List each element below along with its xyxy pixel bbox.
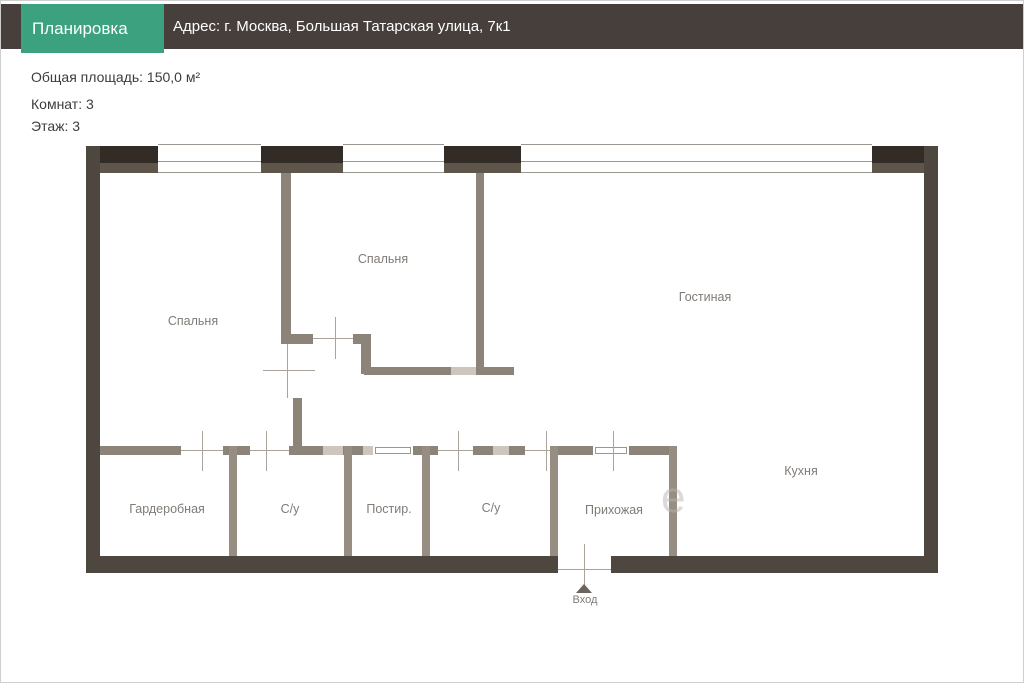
window xyxy=(158,144,261,173)
room-label-bedroom-2: Спальня xyxy=(358,252,408,266)
door-marker xyxy=(458,431,459,471)
interior-wall xyxy=(229,446,237,556)
room-label-laundry: Постир. xyxy=(366,502,411,516)
entrance-line xyxy=(584,544,585,585)
outer-wall-bottom-right xyxy=(611,556,938,573)
room-label-bathroom-1: С/у xyxy=(281,502,300,516)
room-label-bedroom-1: Спальня xyxy=(168,314,218,328)
window xyxy=(343,144,444,173)
interior-wall xyxy=(344,446,352,556)
window-frame-line xyxy=(521,161,872,162)
outer-wall-segment xyxy=(261,146,343,163)
outer-wall-left xyxy=(86,146,100,573)
door-marker xyxy=(202,431,203,471)
interior-wall xyxy=(100,446,181,455)
window xyxy=(521,144,872,173)
entrance-arrow-icon xyxy=(576,584,592,593)
interior-wall xyxy=(364,367,451,375)
door-opening-line xyxy=(313,338,353,339)
outer-wall-right xyxy=(924,146,938,573)
total-area-text: Общая площадь: 150,0 м² xyxy=(31,69,200,85)
room-label-bathroom-2: С/у xyxy=(482,501,501,515)
interior-wall xyxy=(476,367,514,375)
rooms-count-text: Комнат: 3 xyxy=(31,96,94,112)
room-label-kitchen: Кухня xyxy=(784,464,817,478)
interior-wall xyxy=(476,173,484,367)
section-tab-label: Планировка xyxy=(32,19,128,39)
pocket-door xyxy=(595,447,627,454)
interior-wall xyxy=(289,446,323,455)
door-marker xyxy=(263,370,315,371)
interior-wall xyxy=(509,446,525,455)
interior-wall xyxy=(473,446,493,455)
door-marker xyxy=(335,317,336,359)
outer-wall-segment xyxy=(444,146,521,163)
interior-wall xyxy=(422,446,430,556)
window-frame-line xyxy=(343,161,444,162)
wall-opening xyxy=(493,446,509,455)
floor-text: Этаж: 3 xyxy=(31,118,80,134)
outer-wall-segment xyxy=(444,163,521,173)
wall-opening xyxy=(363,446,373,455)
door-marker xyxy=(613,431,614,471)
pocket-door xyxy=(375,447,411,454)
interior-wall xyxy=(281,334,313,344)
room-label-hallway: Прихожая xyxy=(585,503,643,517)
section-tab: Планировка xyxy=(21,4,164,53)
outer-wall-segment xyxy=(261,163,343,173)
door-opening-line xyxy=(287,344,288,398)
window-frame-line xyxy=(158,161,261,162)
wall-opening xyxy=(451,367,476,375)
door-opening-line xyxy=(250,450,289,451)
room-label-living-room: Гостиная xyxy=(679,290,731,304)
interior-wall xyxy=(281,173,291,344)
door-opening-line xyxy=(438,450,473,451)
door-marker xyxy=(266,431,267,471)
floorplan-page: Планировка Адрес: г. Москва, Большая Тат… xyxy=(0,0,1024,683)
wall-opening xyxy=(323,446,343,455)
address-text: Адрес: г. Москва, Большая Татарская улиц… xyxy=(173,4,511,49)
door-marker xyxy=(546,431,547,471)
interior-wall xyxy=(293,398,302,446)
room-label-wardrobe: Гардеробная xyxy=(129,502,205,516)
entrance-label: Вход xyxy=(573,594,598,606)
interior-wall xyxy=(550,446,558,556)
watermark-glyph: е xyxy=(661,473,685,523)
outer-wall-bottom-left xyxy=(86,556,558,573)
